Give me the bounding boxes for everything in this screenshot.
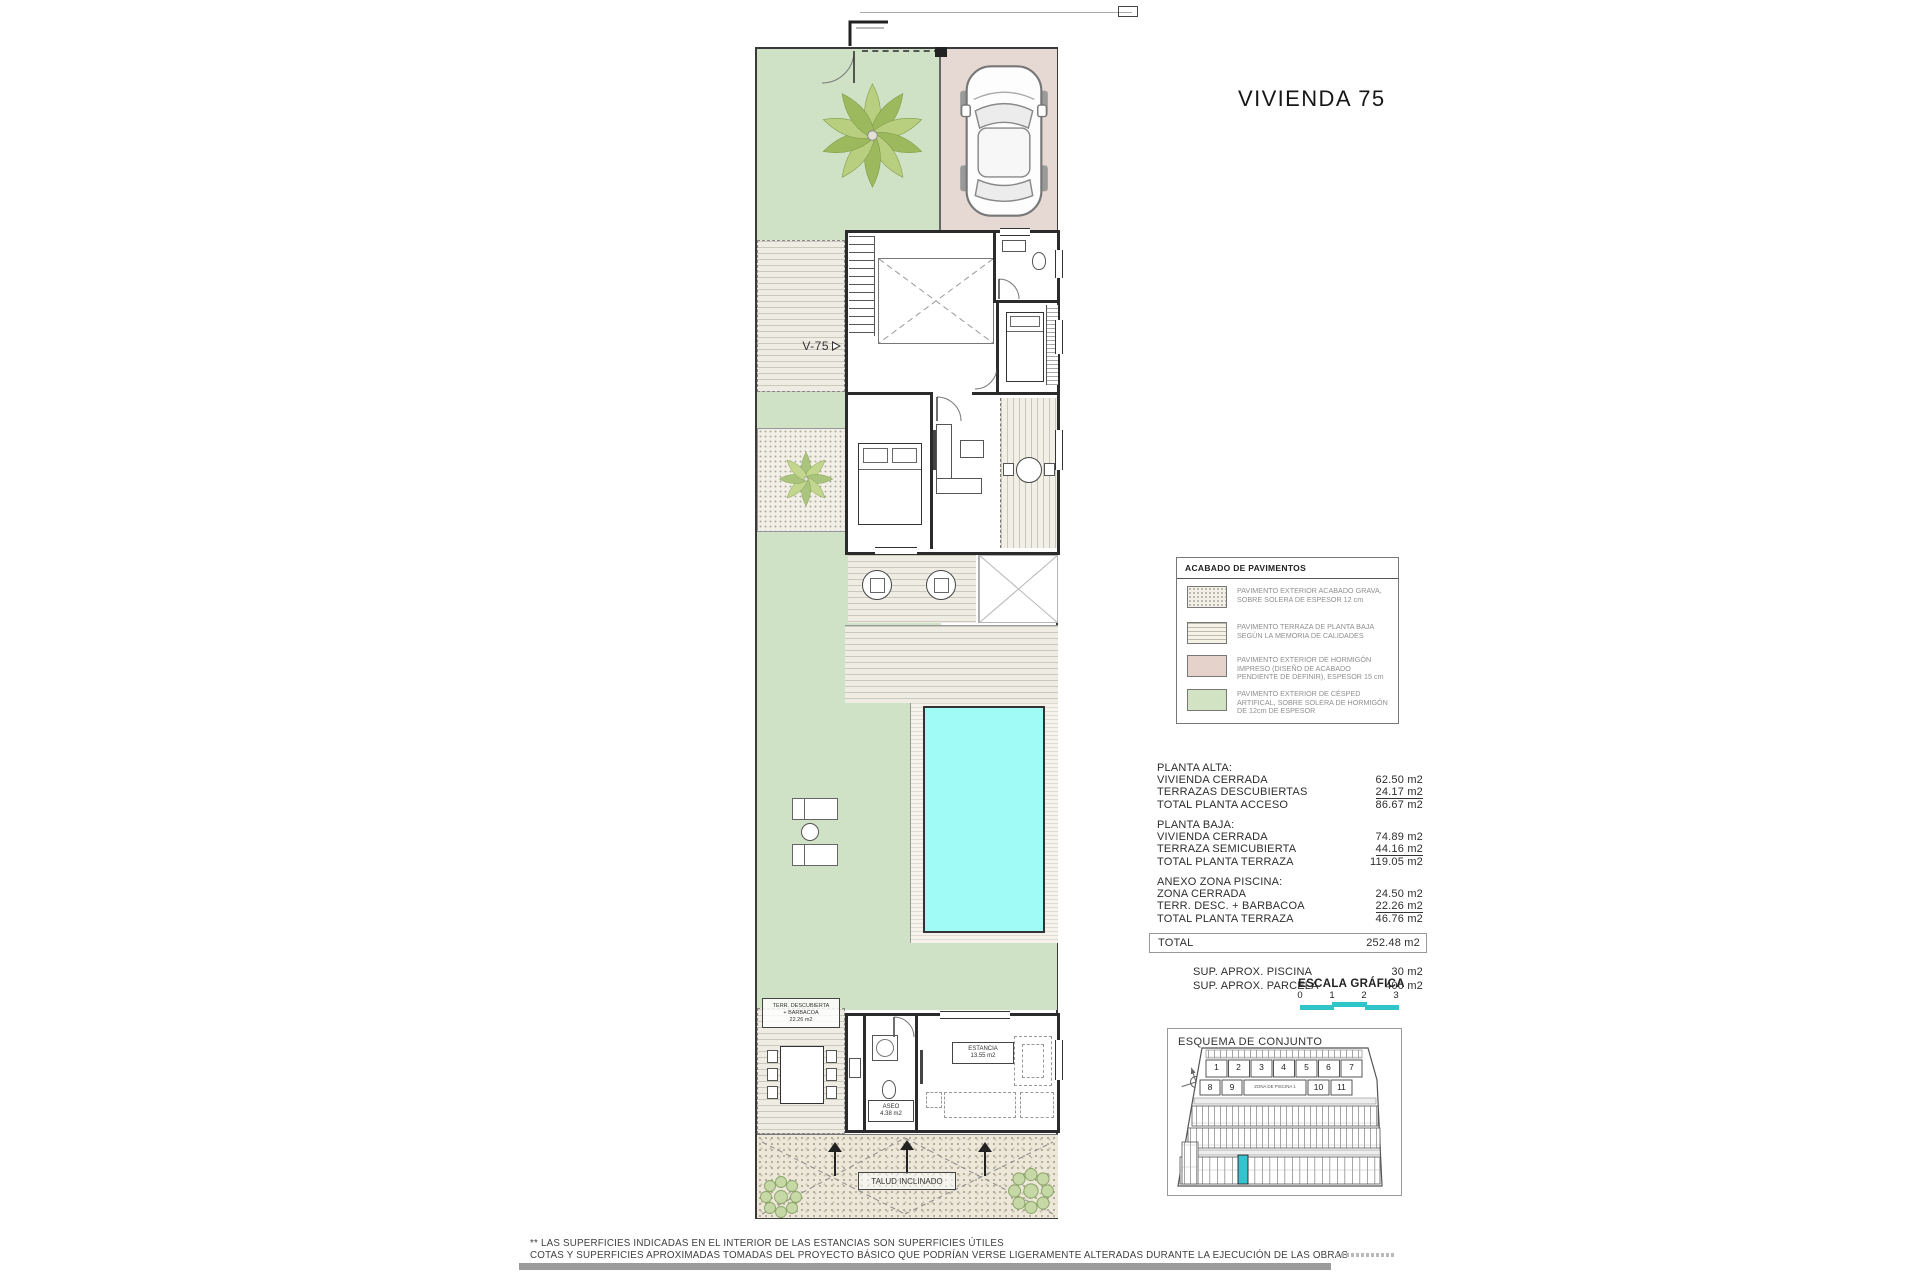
footer-disclaimer-2: COTAS Y SUPERFICIES APROXIMADAS TOMADAS …: [530, 1250, 1348, 1261]
wall-bed2: [930, 395, 933, 549]
terrace-chair-right: [1044, 463, 1055, 476]
estancia-label: ESTANCIA 13.55 m2: [952, 1042, 1014, 1064]
v75-label: V-75: [763, 339, 841, 353]
scale-tick-2: 2: [1359, 990, 1369, 1001]
dining-chair-2: [767, 1068, 778, 1081]
scale-bar-segment: [1332, 1002, 1367, 1007]
gravel-swatch: [1187, 586, 1227, 608]
dining-chair-3: [767, 1086, 778, 1099]
micro-text: [1336, 1253, 1396, 1257]
legend-title: ACABADO DE PAVIMENTOS: [1185, 563, 1306, 573]
washer: [872, 1035, 898, 1061]
table-row: TOTAL PLANTA ACCESO86.67 m2: [1157, 799, 1423, 811]
terrace-band: [845, 625, 1058, 703]
floor-plan-sheet: V-75: [0, 0, 1920, 1280]
zona-piscina-label: ZONA DE PISCINA 1: [1244, 1084, 1306, 1089]
table-row: TERR. DESC. + BARBACOA22.26 m2: [1157, 900, 1423, 913]
context-line: [860, 12, 1132, 13]
table-row: VIVIENDA CERRADA74.89 m2: [1157, 831, 1423, 843]
footer-disclaimer-1: ** LAS SUPERFICIES INDICADAS EN EL INTER…: [530, 1238, 1004, 1249]
slope-arrow-2: [900, 1140, 914, 1174]
bed-1: [1006, 312, 1044, 382]
annex-wall-2: [915, 1016, 918, 1130]
swimming-pool: [923, 706, 1045, 933]
wall-bath: [993, 233, 996, 303]
areas-table: PLANTA ALTA: VIVIENDA CERRADA62.50 m2 TE…: [1157, 762, 1423, 993]
sun-lounger-2: [792, 844, 838, 866]
table-row: TOTAL PLANTA TERRAZA119.05 m2: [1157, 856, 1423, 868]
car-top-view: [958, 62, 1050, 220]
section-title: PLANTA ALTA:: [1157, 762, 1423, 774]
plot-number: 7: [1341, 1062, 1362, 1072]
v75-text: V-75: [802, 339, 829, 353]
legend-divider: [1177, 578, 1398, 579]
terrace-swatch: [1187, 622, 1227, 644]
plot-number: 8: [1200, 1082, 1220, 1092]
plot-number: 6: [1318, 1062, 1339, 1072]
concrete-swatch: [1187, 655, 1227, 677]
annex-window-right: [1055, 1040, 1063, 1080]
dining-chair-5: [826, 1068, 837, 1081]
wall-mid-right: [972, 392, 1060, 395]
entrance-canopy: [848, 18, 892, 48]
table-row: TERRAZA SEMICUBIERTA44.16 m2: [1157, 843, 1423, 856]
dining-chair-6: [826, 1086, 837, 1099]
estancia-tv: [920, 1050, 923, 1084]
page-title: VIVIENDA 75: [1238, 86, 1385, 112]
section-planta-baja: PLANTA BAJA: VIVIENDA CERRADA74.89 m2 TE…: [1157, 819, 1423, 868]
dining-chair-4: [826, 1050, 837, 1063]
bed-2-pillow-b: [892, 448, 917, 463]
window-top-1: [1000, 228, 1030, 236]
section-anexo-piscina: ANEXO ZONA PISCINA: ZONA CERRADA24.50 m2…: [1157, 876, 1423, 925]
plot-number: 4: [1273, 1062, 1294, 1072]
pergola-tile: [978, 555, 1058, 623]
wall-bath-bottom: [993, 300, 1060, 303]
estancia-stool: [926, 1092, 942, 1108]
outdoor-dining-table: [780, 1046, 824, 1104]
scale-tick-1: 1: [1327, 990, 1337, 1001]
window-right-1: [1055, 250, 1063, 278]
scale-title: ESCALA GRÁFICA: [1294, 978, 1409, 990]
annex-wall-1: [863, 1016, 866, 1130]
scale-bar-segment: [1300, 1005, 1334, 1010]
terrace-table: [1016, 457, 1042, 483]
round-chair-2: [926, 570, 956, 600]
garden-bush: [775, 448, 837, 510]
slope-arrow-3: [978, 1142, 992, 1176]
lounger-side-table: [801, 823, 819, 841]
scale-bar-segment: [1365, 1005, 1399, 1010]
window-right-2: [1055, 320, 1063, 354]
total-value: 252.48 m2: [1366, 937, 1420, 949]
round-chair-1: [862, 570, 892, 600]
stair-void: [878, 258, 994, 344]
bath-toilet: [1032, 252, 1046, 270]
terrace-chair-left: [1003, 463, 1014, 476]
annex-window-top: [940, 1011, 1010, 1019]
bed-1-line: [1007, 331, 1043, 332]
fence-dashes: [862, 50, 940, 52]
plot-number: 10: [1308, 1082, 1329, 1092]
plot-number: 2: [1228, 1062, 1249, 1072]
slope-arrow-1: [828, 1142, 842, 1176]
upper-deck-terrace: [757, 240, 845, 392]
scale-tick-0: 0: [1295, 990, 1305, 1001]
gate-post: [935, 47, 947, 57]
table-row: TOTAL PLANTA TERRAZA46.76 m2: [1157, 913, 1423, 925]
plot-number: 5: [1296, 1062, 1317, 1072]
window-right-3: [1055, 430, 1063, 470]
annex-shelf: [849, 1058, 861, 1078]
bed-2-line: [859, 469, 921, 470]
section-title: PLANTA BAJA:: [1157, 819, 1423, 831]
grass-swatch: [1187, 689, 1227, 711]
graphic-scale: ESCALA GRÁFICA 0 1 2 3: [1294, 978, 1409, 1012]
section-title: ANEXO ZONA PISCINA:: [1157, 876, 1423, 888]
sofa-seat: [936, 478, 982, 494]
bed-2-pillow-a: [863, 448, 888, 463]
bed-1-pillow: [1010, 316, 1040, 327]
talud-bush-right: [1008, 1168, 1054, 1214]
footer-bar: [519, 1263, 1331, 1270]
bath-door-arc: [998, 278, 1020, 300]
context-block: [1118, 6, 1138, 17]
estancia-side-table: [1020, 1092, 1054, 1118]
plot-number: 9: [1222, 1082, 1242, 1092]
dining-chair-1: [767, 1050, 778, 1063]
talud-bush-left: [760, 1176, 802, 1218]
lawn-area-lower: [941, 943, 1057, 1010]
plot-number: 3: [1251, 1062, 1272, 1072]
v75-arrow-icon: [832, 341, 841, 351]
coffee-table: [960, 440, 984, 458]
section-planta-alta: PLANTA ALTA: VIVIENDA CERRADA62.50 m2 TE…: [1157, 762, 1423, 811]
estancia-armchair: [1014, 1036, 1052, 1086]
staircase: [849, 236, 875, 336]
plot-number: 1: [1206, 1062, 1227, 1072]
sofa-back: [936, 424, 952, 482]
sup-piscina-row: SUP. APROX. PISCINA30 m2: [1157, 965, 1423, 979]
tv-unit: [933, 430, 936, 470]
sun-lounger-1: [792, 798, 838, 820]
table-row: ZONA CERRADA24.50 m2: [1157, 888, 1423, 900]
garden-divider: [939, 49, 941, 233]
window-bottom-1: [875, 547, 917, 555]
scale-tick-3: 3: [1391, 990, 1401, 1001]
bed-2: [858, 443, 922, 525]
total-label: TOTAL: [1158, 937, 1193, 949]
aseo-label: ASEO 4.38 m2: [868, 1100, 914, 1122]
bed1-door-arc: [974, 366, 998, 390]
talud-label: TALUD INCLINADO: [858, 1172, 956, 1190]
estancia-sofa: [944, 1092, 1016, 1118]
table-row: VIVIENDA CERRADA62.50 m2: [1157, 774, 1423, 786]
terraza-barbacoa-label: TERR. DESCUBIERTA + BARBACOA 22.26 m2: [762, 998, 840, 1028]
total-row: TOTAL 252.48 m2: [1149, 933, 1427, 953]
wall-mid-left: [848, 392, 933, 395]
palm-tree: [815, 78, 930, 193]
pavement-legend: ACABADO DE PAVIMENTOS PAVIMENTO EXTERIOR…: [1176, 557, 1399, 724]
table-row: TERRAZAS DESCUBIERTAS24.17 m2: [1157, 786, 1423, 799]
bed2-door-arc: [936, 396, 962, 422]
annex-toilet: [882, 1080, 896, 1099]
plot-number: 11: [1331, 1082, 1352, 1092]
bath-sink: [1002, 240, 1026, 252]
